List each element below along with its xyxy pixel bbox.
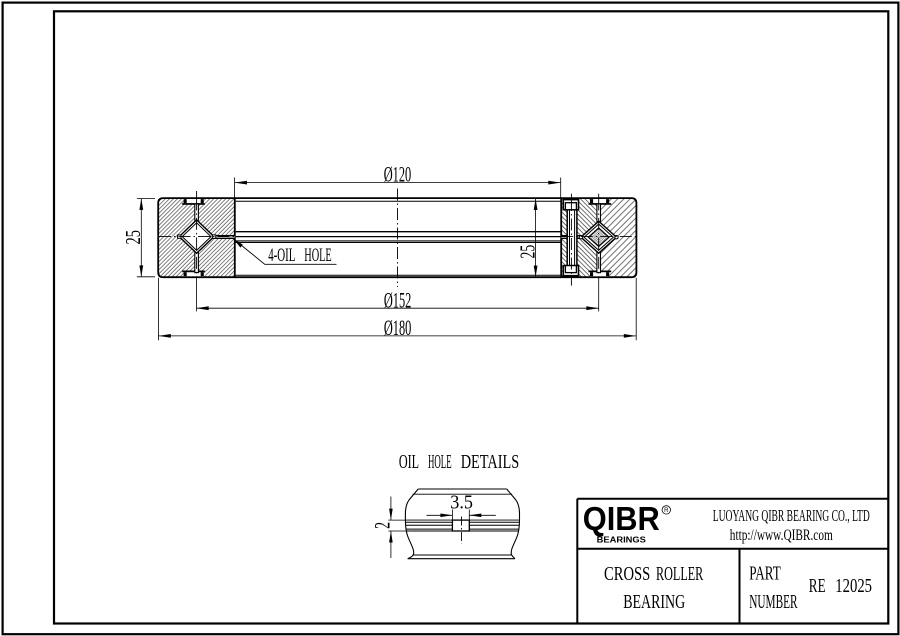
svg-text:Ø180: Ø180: [384, 315, 412, 340]
svg-text:25: 25: [121, 230, 145, 245]
svg-text:LUOYANG QIBR BEARING CO., LTD: LUOYANG QIBR BEARING CO., LTD: [713, 506, 870, 525]
svg-text:Ø120: Ø120: [384, 161, 412, 186]
svg-text:BEARING: BEARING: [623, 591, 685, 613]
svg-text:25: 25: [515, 245, 539, 259]
svg-text:Ø152: Ø152: [384, 287, 412, 312]
svg-text:NUMBER: NUMBER: [749, 591, 798, 613]
svg-text:2: 2: [370, 522, 395, 529]
svg-text:http://www.QIBR.com: http://www.QIBR.com: [730, 527, 833, 544]
svg-text:R: R: [664, 508, 669, 514]
svg-text:RE12025: RE12025: [809, 575, 872, 597]
svg-text:BEARINGS: BEARINGS: [597, 535, 647, 544]
svg-text:3.5: 3.5: [450, 492, 473, 513]
svg-text:PART: PART: [749, 563, 781, 585]
svg-text:QIBR: QIBR: [583, 500, 660, 537]
